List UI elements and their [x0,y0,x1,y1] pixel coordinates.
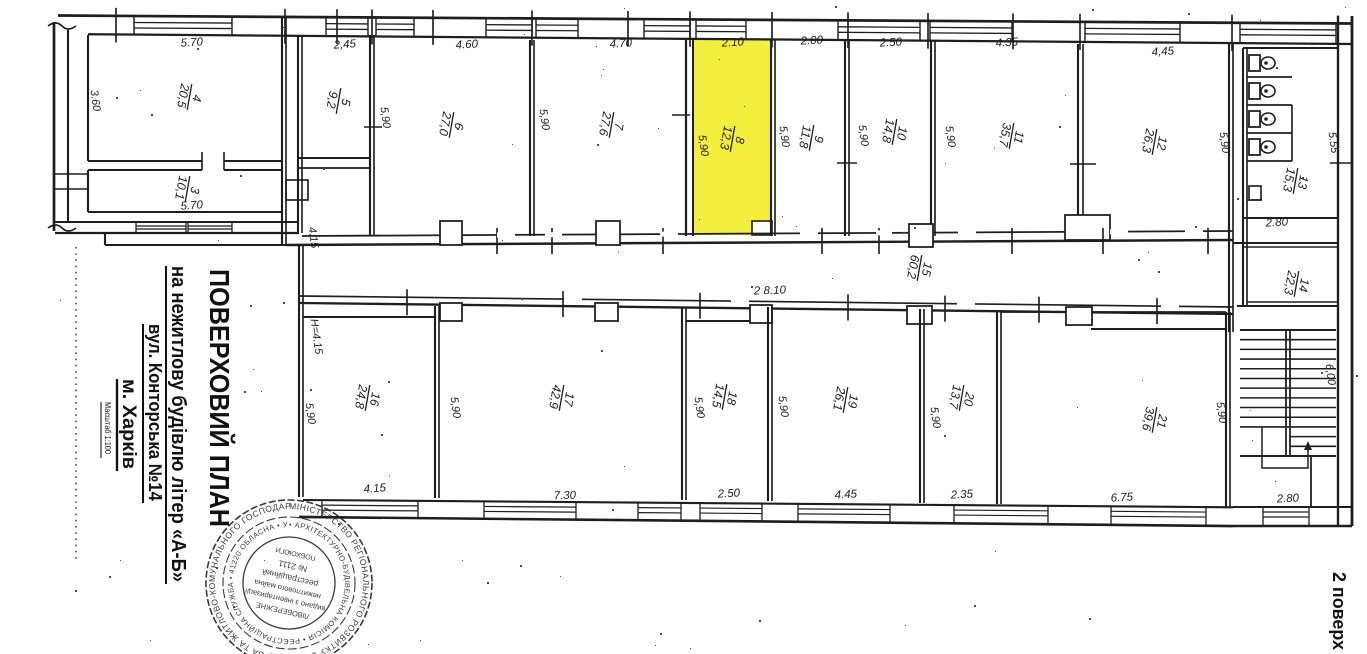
svg-text:2.80: 2.80 [1264,216,1289,229]
svg-text:2 поверх: 2 поверх [1329,572,1349,650]
svg-text:2.35: 2.35 [949,488,974,501]
svg-text:ПОВЕРХОВИЙ ПЛАН: ПОВЕРХОВИЙ ПЛАН [204,269,236,527]
svg-text:5.70: 5.70 [180,199,204,213]
svg-text:2.80: 2.80 [1275,492,1300,505]
svg-text:4,45: 4,45 [1151,45,1175,58]
svg-text:4.70: 4.70 [609,37,633,50]
svg-text:4.35: 4.35 [995,36,1019,49]
svg-text:2.50: 2.50 [878,36,903,49]
svg-text:на нежитлову будівлю літер «А-: на нежитлову будівлю літер «А-Б» [167,266,189,582]
svg-text:4.45: 4.45 [834,488,858,501]
svg-text:2.00: 2.00 [799,34,824,47]
svg-text:7.30: 7.30 [553,490,576,503]
svg-text:9,2: 9,2 [324,90,341,109]
svg-text:2,45: 2,45 [332,38,357,52]
svg-text:2.50: 2.50 [716,487,741,500]
svg-text:м. Харків: м. Харків [118,379,140,469]
svg-text:Масштаб 1:100: Масштаб 1:100 [103,402,113,454]
svg-text:4.60: 4.60 [455,38,479,51]
svg-text:4.15: 4.15 [363,482,387,496]
svg-text:2.10: 2.10 [720,36,745,50]
svg-text:вул. Конторська №14: вул. Конторська №14 [145,324,166,502]
svg-text:6.75: 6.75 [1110,491,1134,504]
svg-text:5.70: 5.70 [180,36,204,50]
svg-text:2 8.10: 2 8.10 [753,284,787,297]
